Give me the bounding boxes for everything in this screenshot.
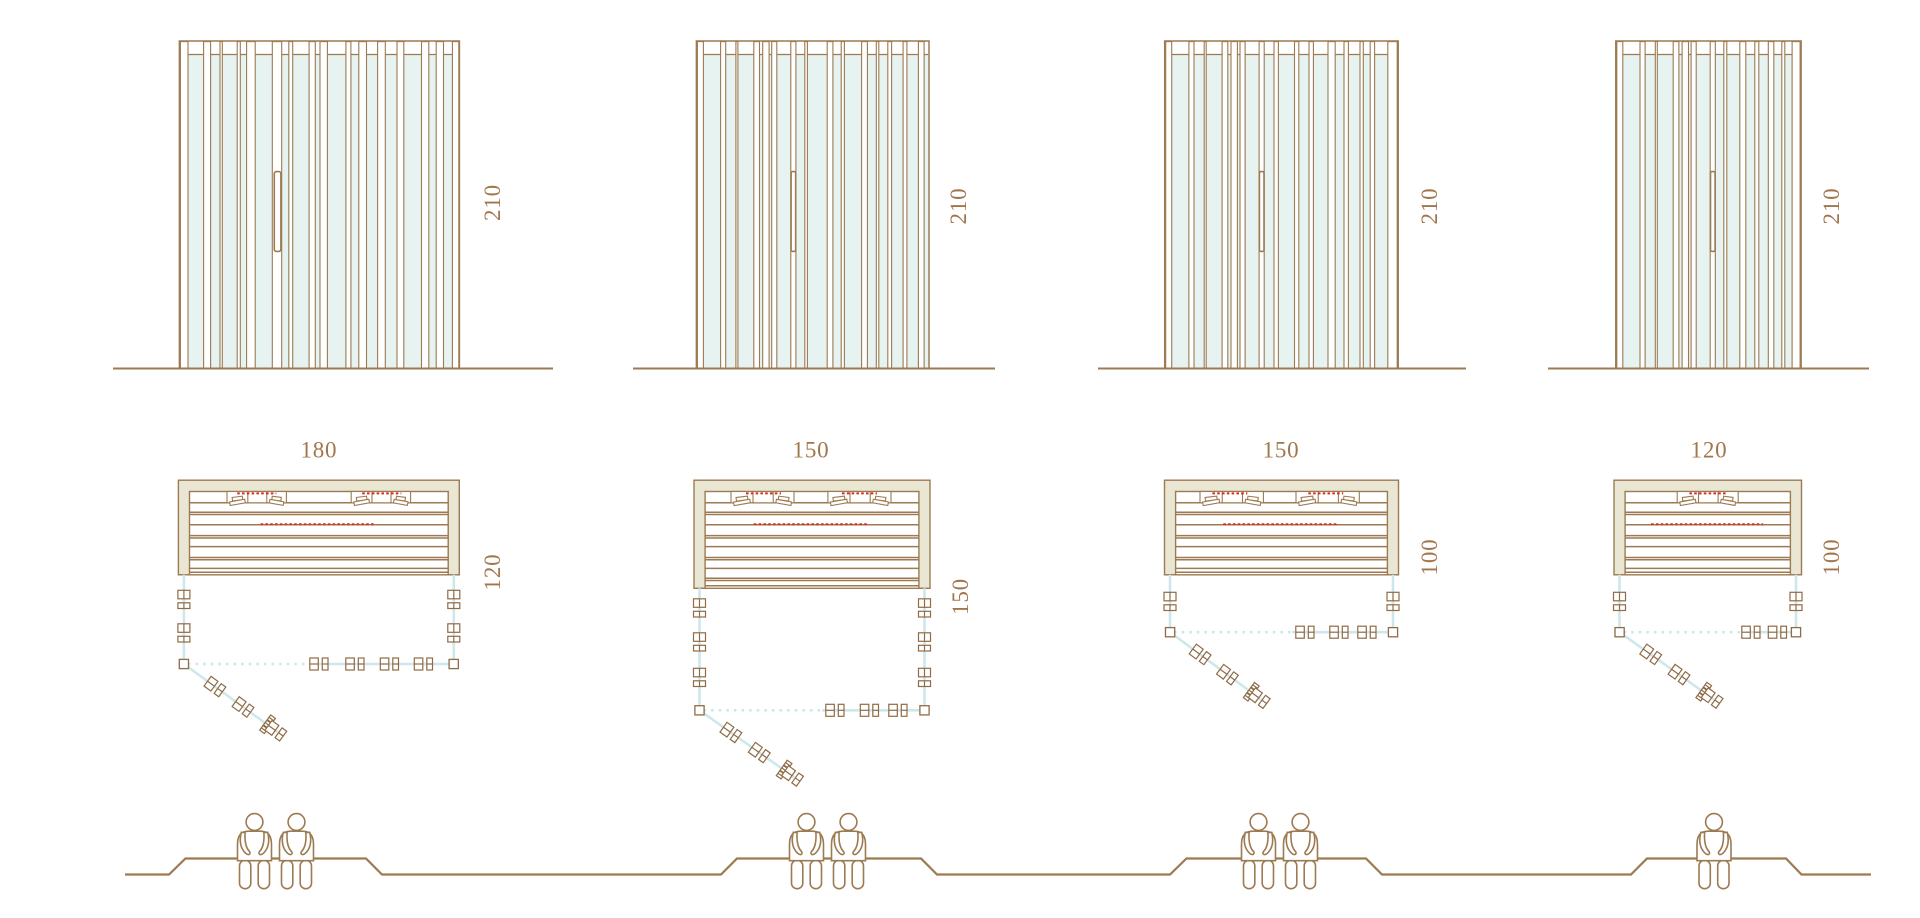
- svg-text:210: 210: [480, 184, 505, 221]
- svg-text:210: 210: [1417, 188, 1442, 225]
- svg-text:100: 100: [1417, 539, 1442, 576]
- svg-text:150: 150: [1263, 438, 1300, 463]
- svg-text:120: 120: [480, 554, 505, 591]
- svg-text:180: 180: [300, 438, 337, 463]
- svg-text:150: 150: [948, 578, 973, 615]
- svg-text:210: 210: [946, 188, 971, 225]
- svg-text:100: 100: [1819, 539, 1844, 576]
- svg-text:210: 210: [1819, 188, 1844, 225]
- svg-text:120: 120: [1691, 438, 1728, 463]
- svg-text:150: 150: [793, 438, 830, 463]
